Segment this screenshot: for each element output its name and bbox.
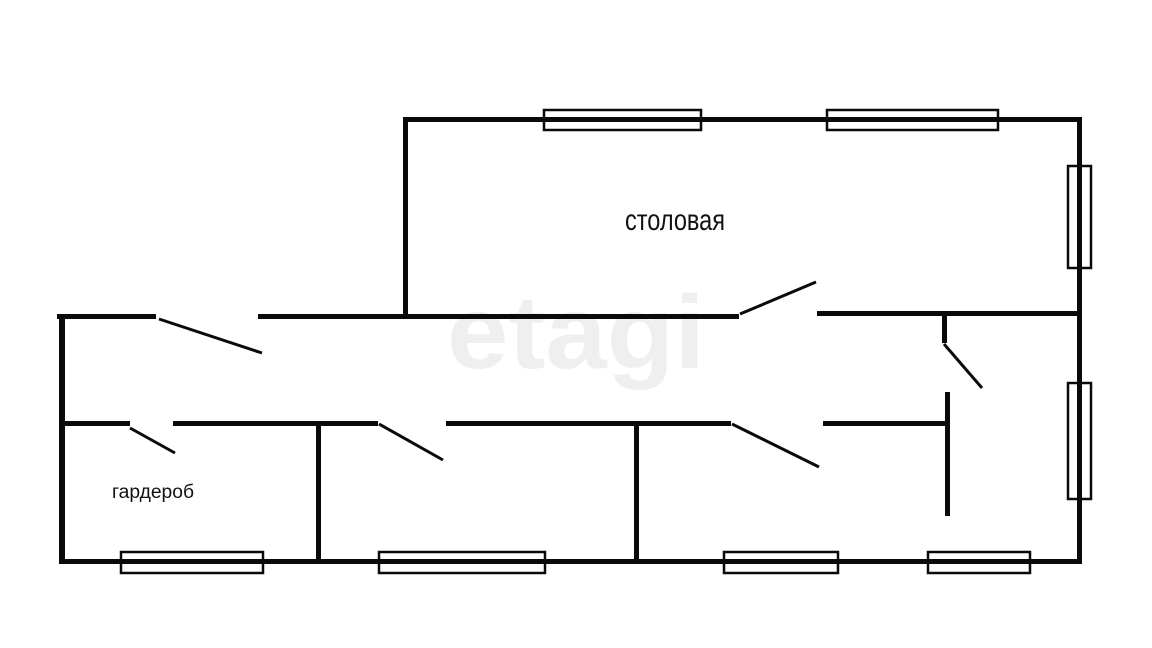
svg-text:etagi: etagi: [447, 275, 705, 391]
svg-text:гардероб: гардероб: [112, 482, 194, 503]
svg-text:столовая: столовая: [625, 204, 725, 237]
